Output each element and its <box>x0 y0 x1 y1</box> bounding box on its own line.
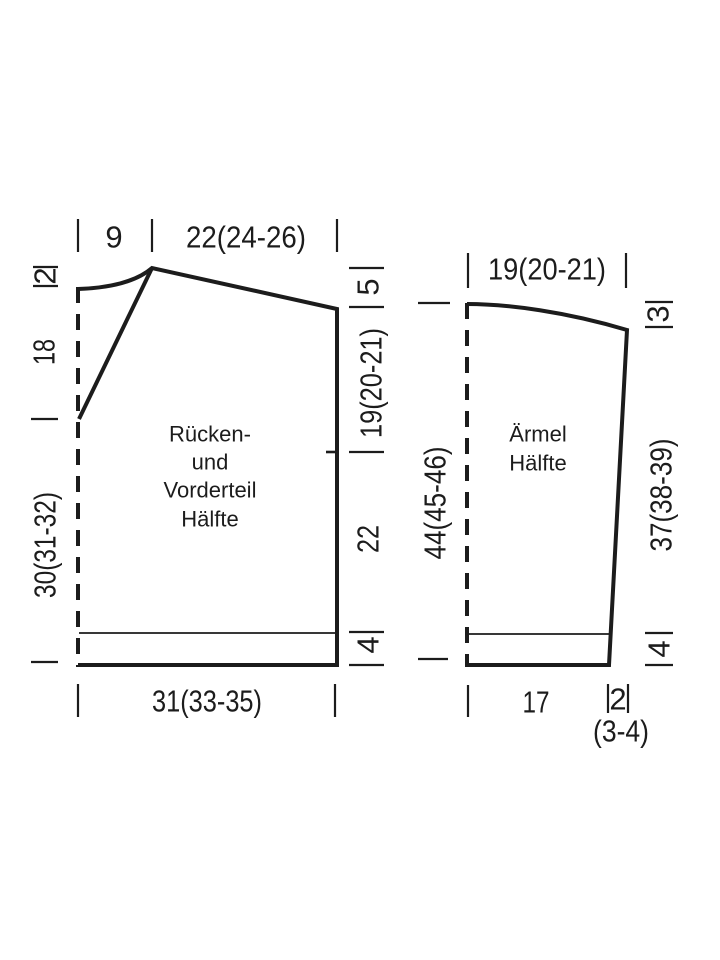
sleeve-increase-width-label: 2 <box>609 682 626 717</box>
sleeve-length-label: 44(45-46) <box>418 447 453 560</box>
sleeve-cuff-width-label: 17 <box>523 685 550 720</box>
schematic-page: 9 22(24-26) 31(33-35) 2 18 30(31-32) 5 1… <box>0 0 720 960</box>
sleeve-seam-length-label: 37(38-39) <box>644 439 679 552</box>
body-shoulder-width-label: 22(24-26) <box>186 220 306 255</box>
sleeve-cap-height-label: 3 <box>641 305 676 322</box>
body-title-line: Hälfte <box>181 507 238 532</box>
sleeve-piece-title: Ärmel Hälfte <box>509 422 566 476</box>
body-back-neck-depth-label: 2 <box>28 267 63 284</box>
sleeve-piece: 19(20-21) 17 2 (3-4) 44(45-46) 3 37(38-3… <box>418 252 679 749</box>
body-front-neck-depth-label: 18 <box>27 339 62 365</box>
body-neck-width-label: 9 <box>105 220 122 255</box>
body-title-line: und <box>192 450 229 475</box>
body-vneck-line <box>79 268 152 419</box>
body-piece: 9 22(24-26) 31(33-35) 2 18 30(31-32) 5 1… <box>27 219 389 719</box>
sleeve-title-line: Ärmel <box>509 422 566 447</box>
body-left-dimension-ticks <box>31 267 58 662</box>
body-hem-width-label: 31(33-35) <box>152 684 262 719</box>
sleeve-title-line: Hälfte <box>509 451 566 476</box>
body-title-line: Rücken- <box>169 422 251 447</box>
body-ribbing-height-label: 4 <box>351 636 386 653</box>
sleeve-ribbing-height-label: 4 <box>642 640 677 657</box>
body-lower-length-label: 30(31-32) <box>28 492 63 598</box>
schematic-canvas: 9 22(24-26) 31(33-35) 2 18 30(31-32) 5 1… <box>0 0 720 960</box>
body-right-dimension-ticks <box>349 268 384 665</box>
body-side-length-label: 22 <box>351 525 386 553</box>
body-armhole-depth-label: 19(20-21) <box>354 328 389 438</box>
body-piece-title: Rücken- und Vorderteil Hälfte <box>164 422 257 532</box>
body-shoulder-drop-label: 5 <box>351 278 386 295</box>
body-title-line: Vorderteil <box>164 478 257 503</box>
sleeve-top-width-label: 19(20-21) <box>488 252 606 287</box>
sleeve-increase-sizes-label: (3-4) <box>593 714 649 749</box>
sleeve-outline <box>467 304 627 665</box>
